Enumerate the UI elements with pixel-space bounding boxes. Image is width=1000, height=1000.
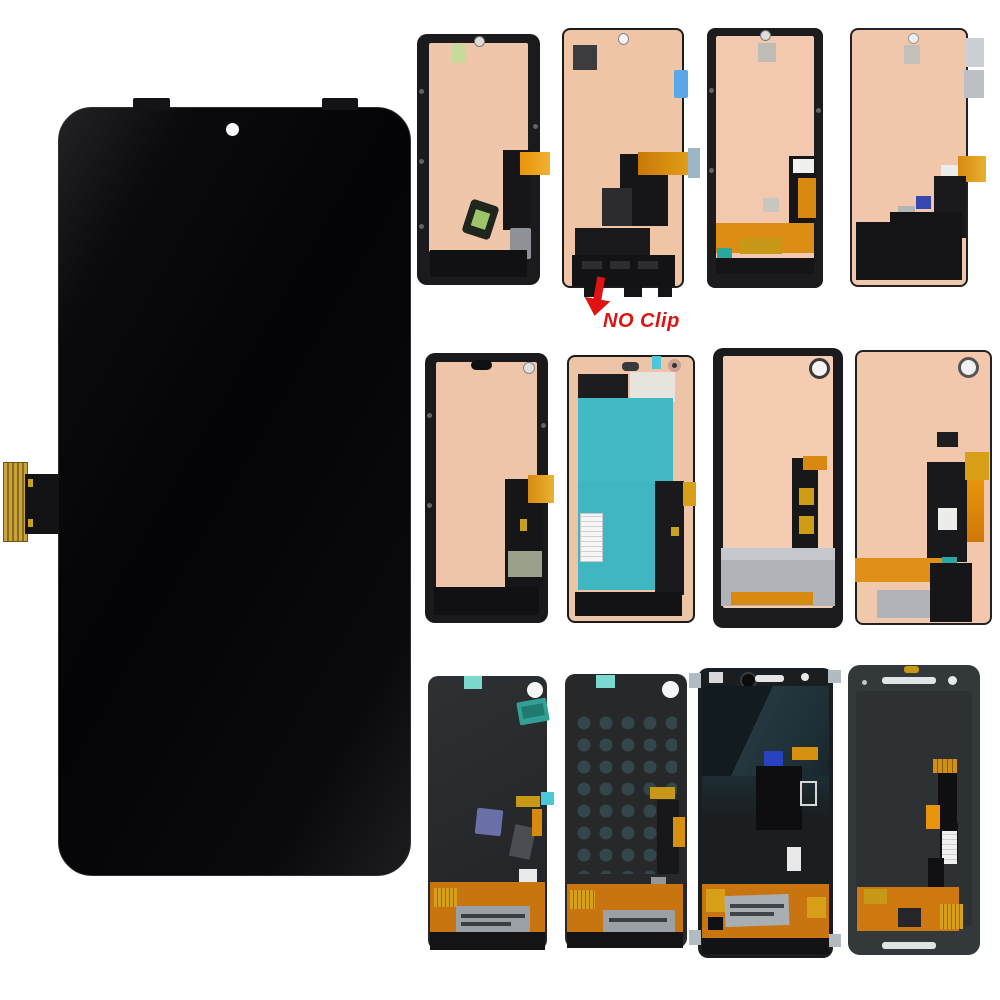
white-dot — [801, 673, 809, 681]
label-text-line-1 — [461, 914, 525, 918]
lcd-frameless-back-mid-4 — [855, 350, 992, 625]
top-tab-left — [133, 98, 170, 110]
gold-contacts — [671, 527, 679, 536]
black-patch — [937, 432, 958, 447]
bottom-lip — [430, 932, 545, 950]
bottom-lip — [567, 932, 683, 948]
white-sticker — [938, 508, 957, 530]
gold-pill-top — [904, 666, 919, 673]
speaker-slot-bottom — [882, 942, 936, 949]
label-text-line-2 — [730, 912, 774, 916]
frame-screw-1 — [419, 89, 424, 94]
silver-tab-top-left — [689, 673, 701, 688]
white-square — [519, 869, 537, 883]
screw-top — [474, 36, 485, 47]
gold-connector-out — [673, 817, 685, 847]
cyan-tab — [541, 792, 554, 805]
metal-label — [724, 894, 789, 927]
lcd-frameless-back-top-4 — [850, 28, 968, 287]
bottom-block — [572, 255, 675, 286]
speaker-assembly — [430, 250, 527, 277]
gray-sticker — [904, 45, 920, 64]
flex-cable-small — [803, 456, 827, 470]
tiny-dot — [862, 680, 867, 685]
gold-grid-right — [940, 904, 963, 929]
flex-stripe — [731, 592, 813, 605]
gold-connector-right — [807, 897, 826, 918]
frame-screw-2 — [419, 159, 424, 164]
gray-sticker-small — [763, 198, 779, 212]
camera-hole — [662, 681, 679, 698]
gold-connector-out — [965, 452, 989, 480]
silver-tab-bottom-left — [689, 930, 701, 945]
silver-shine — [721, 548, 835, 560]
screw-top — [908, 33, 919, 44]
flex-cable-out — [520, 152, 550, 175]
label-text-line-2 — [461, 922, 511, 926]
camera-hole — [618, 33, 629, 45]
camera-pill — [471, 360, 492, 370]
black-patch-top — [578, 374, 628, 398]
lcd-framed-back-top-3 — [707, 28, 823, 288]
bottom-lip — [716, 258, 814, 274]
silver-tab-bottom-right — [828, 934, 841, 947]
camera-hole — [226, 123, 239, 136]
camera-dot — [672, 363, 677, 368]
camera-hole — [527, 682, 543, 698]
frame-screw-3 — [419, 224, 424, 229]
flex-glint-1 — [28, 479, 33, 487]
gold-rect — [516, 796, 540, 807]
label-text-line — [609, 918, 667, 922]
connector-straps — [575, 228, 650, 256]
frame-screw-1 — [709, 88, 714, 93]
black-square — [708, 917, 723, 930]
white-sticker-top — [709, 672, 723, 683]
slot-1 — [582, 261, 602, 269]
gold-connector-grid — [434, 888, 457, 907]
frame-screw-3 — [816, 108, 821, 113]
label-text-line-1 — [730, 904, 784, 908]
white-label — [942, 831, 957, 864]
no-clip-label: NO Clip — [603, 310, 680, 333]
teal-sticker-upper — [578, 398, 673, 483]
dark-flex-region — [655, 481, 684, 595]
gold-connector-grid — [570, 890, 595, 909]
speaker-slot-top — [882, 677, 936, 684]
screw-top — [523, 362, 535, 374]
black-bottom-right — [930, 563, 972, 622]
screw-top — [760, 30, 771, 41]
foot-2 — [624, 286, 642, 297]
green-sticker — [452, 44, 466, 63]
flex-cable-down — [798, 178, 816, 218]
white-outline-square — [800, 781, 817, 806]
bottom-lip — [702, 938, 829, 954]
teal-tab — [596, 675, 615, 688]
chip — [898, 908, 921, 927]
metal-label — [456, 906, 530, 935]
blue-sticker — [475, 808, 504, 837]
dark-ribbon — [756, 766, 802, 830]
pixel-6-pro-front-large-body — [58, 107, 411, 876]
flex-strip — [532, 809, 542, 836]
flex-ribbon-vertical — [967, 480, 984, 542]
flex-end-connector — [688, 148, 700, 178]
gold-connector-out — [683, 482, 696, 506]
gray-sticker — [758, 43, 776, 62]
teal-tab — [464, 676, 482, 689]
flex-glint-2 — [28, 519, 33, 527]
orange-connector — [926, 805, 940, 829]
bottom-black — [575, 592, 682, 616]
slot-2 — [610, 261, 630, 269]
lcd-dark-back-bottom-3 — [698, 668, 833, 958]
gold-connector — [792, 747, 818, 760]
lcd-frameless-back-top-2 — [562, 28, 684, 288]
gold-connector-top — [933, 759, 957, 773]
top-tab-right — [322, 98, 358, 110]
white-sticker — [793, 159, 814, 173]
gold-rect — [650, 787, 675, 799]
frame-screw-1 — [427, 413, 432, 418]
slot-3 — [638, 261, 658, 269]
dark-ribbon-1 — [938, 773, 957, 825]
blue-tab — [674, 70, 688, 98]
lcd-framed-back-mid-1 — [425, 353, 548, 623]
frame-screw-4 — [533, 124, 538, 129]
dark-mid-patch — [602, 188, 632, 226]
lcd-dark-back-bottom-1 — [428, 676, 547, 950]
pixel-6-pro-front-large — [58, 107, 411, 876]
dark-pill — [622, 362, 639, 371]
gold-connector — [740, 238, 782, 254]
white-square — [787, 847, 801, 871]
cyan-tab — [652, 356, 661, 369]
gold-rect-2 — [799, 516, 814, 534]
frame-screw-3 — [541, 423, 546, 428]
frame-screw-2 — [709, 168, 714, 173]
lcd-dark-dotted-back-bottom-2 — [565, 674, 687, 948]
gold-connector-left — [864, 889, 887, 904]
dark-ribbon-3 — [928, 858, 944, 890]
white-label-vertical — [580, 513, 603, 562]
camera-hole — [809, 358, 830, 379]
white-dot — [948, 676, 957, 685]
green-plate — [508, 551, 542, 577]
lcd-framed-back-mid-3 — [713, 348, 843, 628]
gray-tab-2 — [964, 70, 984, 98]
frame-screw-2 — [427, 503, 432, 508]
lcd-gray-back-bottom-4 — [848, 665, 980, 955]
gold-rect-1 — [799, 488, 814, 505]
black-bottom — [856, 222, 962, 280]
lcd-teal-sticker-back-mid-2 — [567, 355, 695, 623]
gold-connector-left — [706, 889, 725, 912]
speaker-slot-top — [755, 675, 784, 682]
dark-square-sticker — [573, 45, 597, 70]
gold-contacts — [520, 519, 527, 531]
lcd-framed-back-top-1 — [417, 34, 540, 285]
camera-hole — [958, 357, 979, 378]
silver-tab-top-right — [828, 670, 841, 683]
foot-3 — [658, 286, 672, 297]
flex-cable-out — [528, 475, 554, 503]
blue-sticker — [916, 196, 931, 209]
speaker-assembly — [434, 587, 539, 615]
gray-tab-1 — [966, 38, 984, 67]
